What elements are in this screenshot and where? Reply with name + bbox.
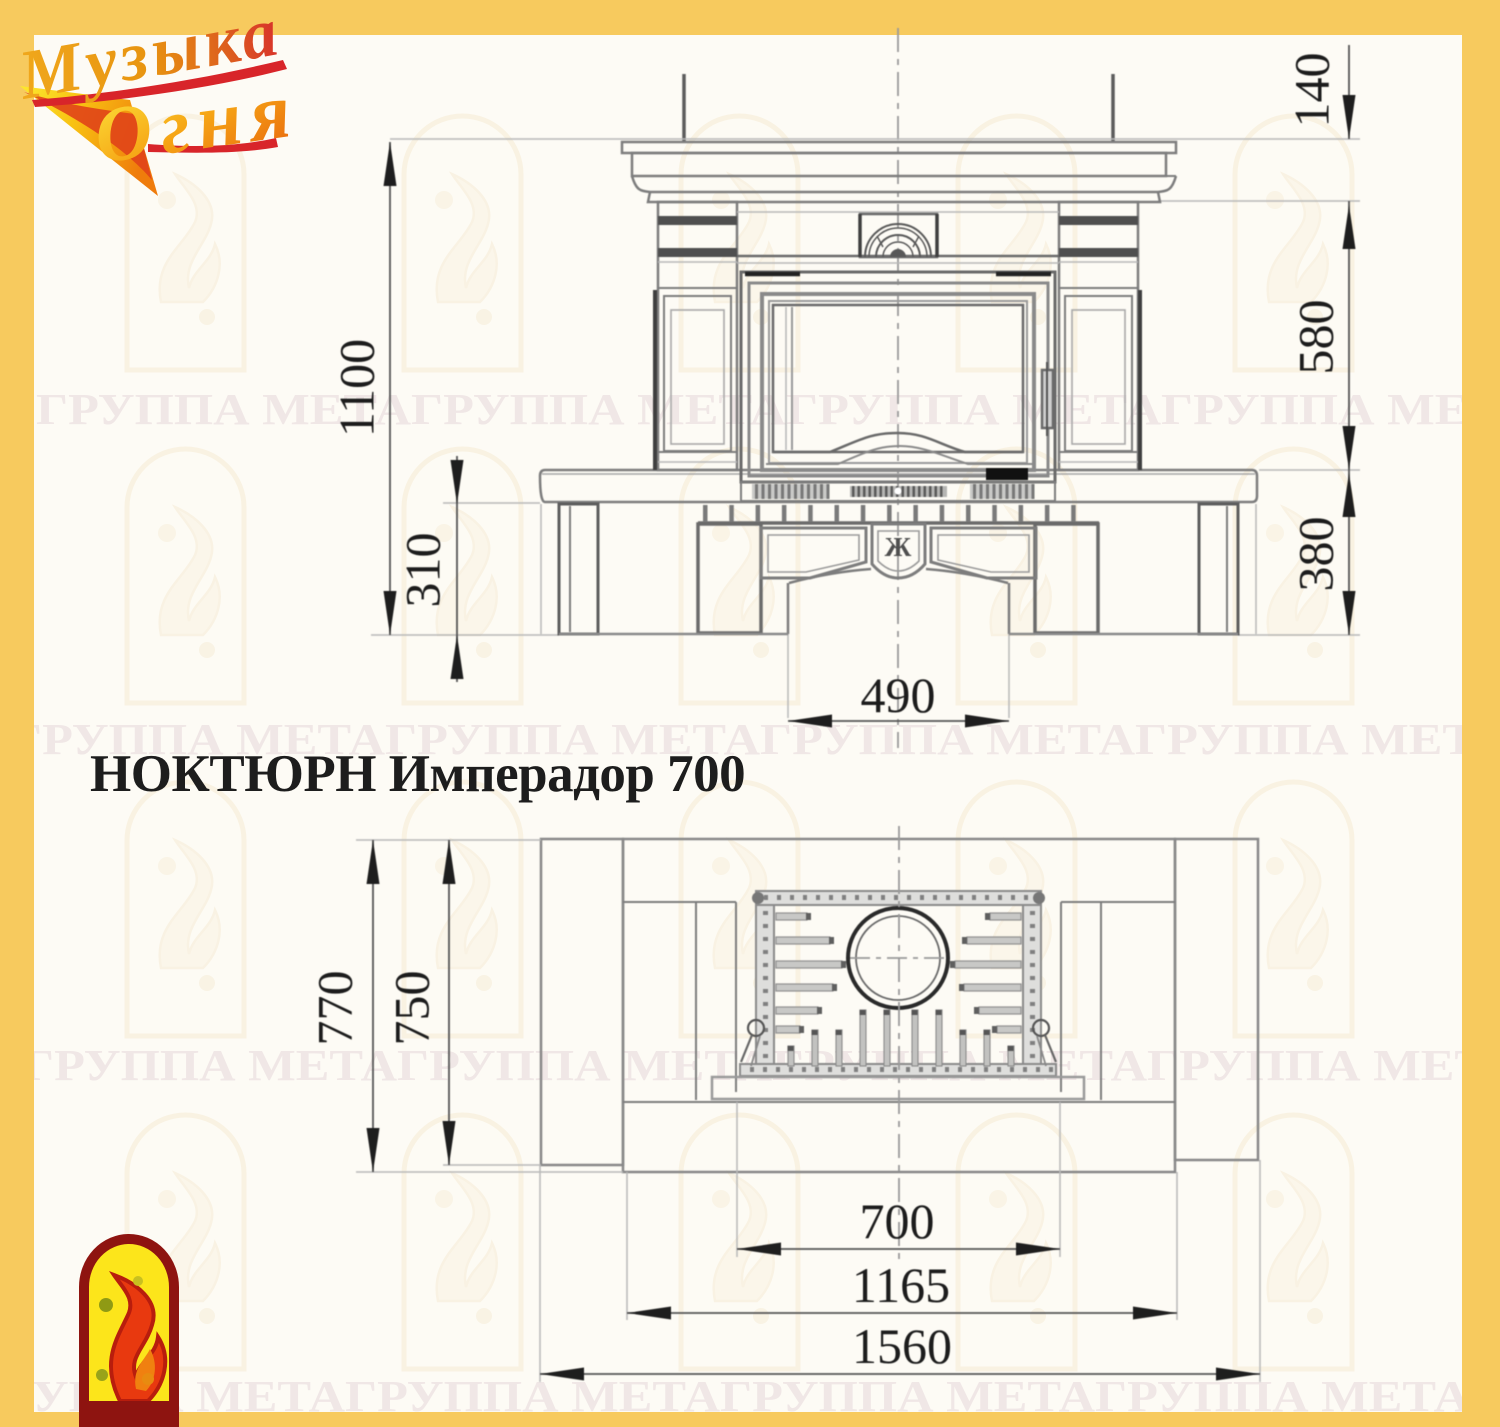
svg-text:490: 490 [861,667,936,723]
svg-text:770: 770 [306,971,362,1046]
svg-text:1100: 1100 [328,339,384,437]
svg-text:140: 140 [1283,53,1339,128]
svg-text:1165: 1165 [852,1257,950,1313]
svg-text:750: 750 [383,971,439,1046]
svg-text:Ж: Ж [885,532,912,562]
svg-text:700: 700 [860,1193,935,1249]
svg-text:1560: 1560 [852,1318,952,1374]
svg-text:380: 380 [1287,517,1343,592]
svg-text:580: 580 [1287,300,1343,375]
svg-text:310: 310 [394,533,450,608]
